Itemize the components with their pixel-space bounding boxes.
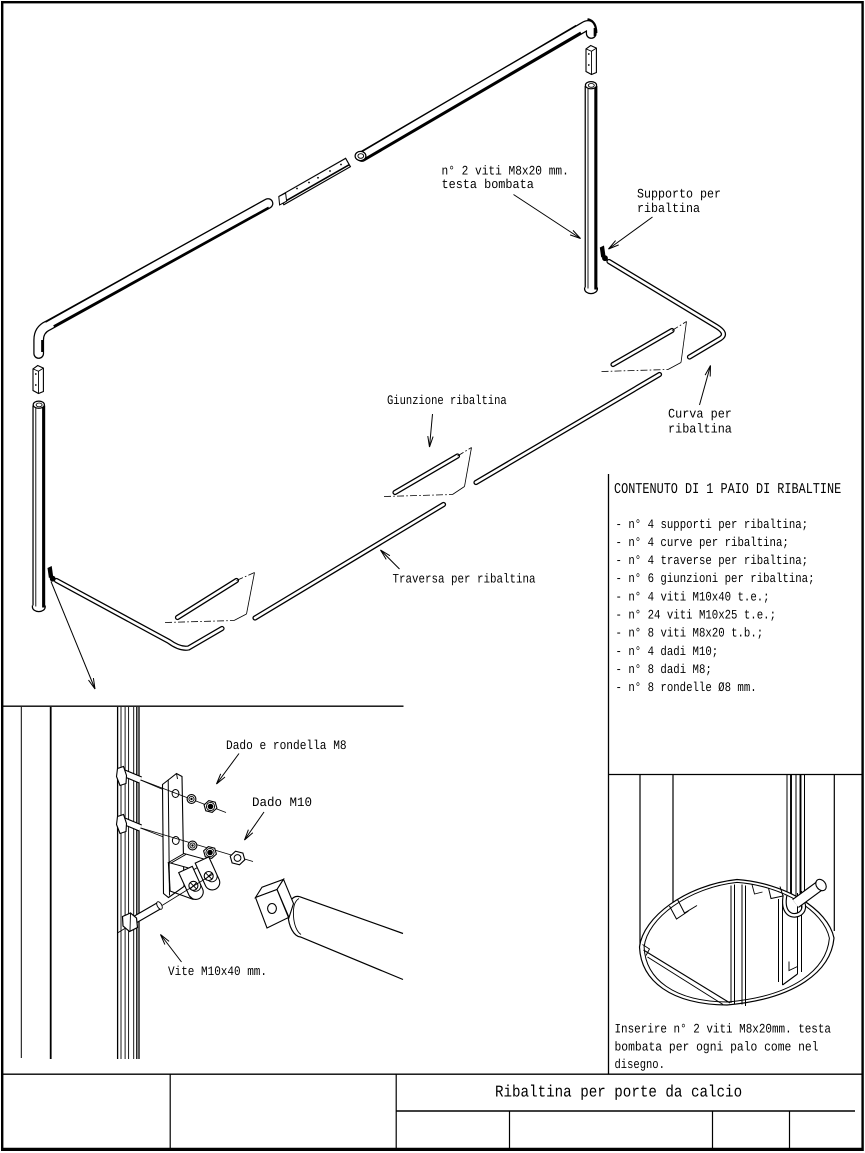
- svg-text:ribaltina: ribaltina: [668, 422, 732, 437]
- svg-text:- n° 4 viti M10x40 t.e.;: - n° 4 viti M10x40 t.e.;: [616, 589, 770, 604]
- svg-text:- n° 8 viti M8x20 t.b.;: - n° 8 viti M8x20 t.b.;: [616, 626, 764, 641]
- svg-text:- n° 8 rondelle Ø8 mm.: - n° 8 rondelle Ø8 mm.: [616, 680, 757, 695]
- svg-text:ribaltina: ribaltina: [637, 201, 700, 216]
- svg-text:- n° 4 curve per ribaltina;: - n° 4 curve per ribaltina;: [616, 535, 789, 550]
- svg-text:Traversa per ribaltina: Traversa per ribaltina: [393, 572, 536, 587]
- svg-text:- n° 6 giunzioni per ribaltina: - n° 6 giunzioni per ribaltina;: [616, 571, 815, 586]
- svg-text:testa bombata: testa bombata: [442, 177, 534, 192]
- svg-text:Vite M10x40 mm.: Vite M10x40 mm.: [168, 964, 267, 979]
- svg-text:- n° 4 traverse per ribaltina;: - n° 4 traverse per ribaltina;: [616, 553, 809, 568]
- svg-text:Dado e rondella M8: Dado e rondella M8: [226, 738, 347, 753]
- svg-text:- n° 24 viti M10x25 t.e.;: - n° 24 viti M10x25 t.e.;: [616, 608, 777, 623]
- svg-text:Ribaltina per porte da calcio: Ribaltina per porte da calcio: [495, 1083, 742, 1102]
- svg-text:- n° 4 supporti per ribaltina;: - n° 4 supporti per ribaltina;: [616, 517, 809, 532]
- svg-text:Inserire n° 2 viti M8x20mm. te: Inserire n° 2 viti M8x20mm. testa: [615, 1021, 832, 1036]
- svg-text:CONTENUTO DI 1 PAIO DI RIBALTI: CONTENUTO DI 1 PAIO DI RIBALTINE: [614, 481, 841, 498]
- svg-text:Giunzione ribaltina: Giunzione ribaltina: [387, 393, 507, 408]
- svg-text:- n° 8 dadi M8;: - n° 8 dadi M8;: [616, 662, 712, 677]
- svg-text:Curva per: Curva per: [668, 407, 732, 422]
- svg-text:Supporto per: Supporto per: [637, 186, 721, 201]
- svg-text:disegno.: disegno.: [615, 1057, 665, 1072]
- svg-text:- n° 4 dadi M10;: - n° 4 dadi M10;: [616, 644, 719, 659]
- svg-text:Dado M10: Dado M10: [252, 795, 312, 810]
- svg-text:bombata per ogni palo come nel: bombata per ogni palo come nel: [615, 1039, 819, 1054]
